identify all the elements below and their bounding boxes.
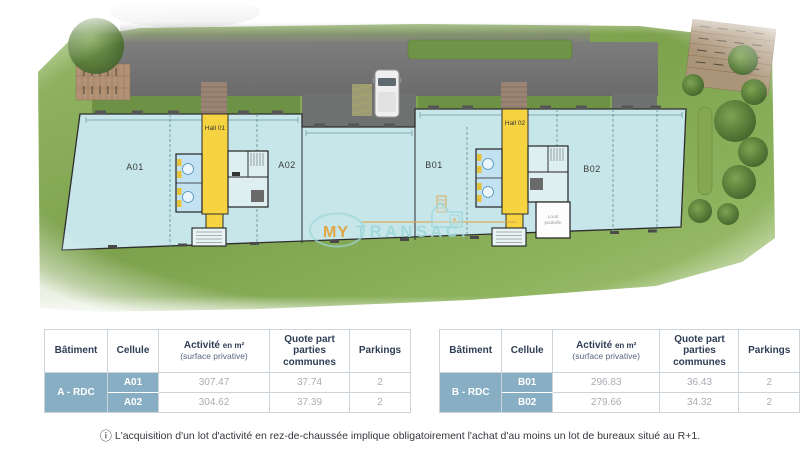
header-activite: Activité en m² (surface privative): [159, 330, 270, 373]
activite-value: 304.62: [159, 393, 270, 413]
header-activite-sub: (surface privative): [557, 352, 656, 362]
quote-value: 37.39: [270, 393, 350, 413]
cellule-cell: A01: [108, 373, 159, 393]
header-quote-part: Quote part parties communes: [270, 330, 350, 373]
site-plan: Hall 01 Local: [0, 0, 800, 322]
header-cellule: Cellule: [108, 330, 159, 373]
parkings-value: 2: [739, 373, 800, 393]
activite-value: 279.66: [552, 393, 660, 413]
footnote: ⓘL'acquisition d'un lot d'activité en re…: [0, 427, 800, 444]
page: Hall 01 Local: [0, 0, 800, 450]
cellule-cell: A02: [108, 393, 159, 413]
header-parkings: Parkings: [350, 330, 411, 373]
quote-value: 34.32: [660, 393, 739, 413]
activite-value: 296.83: [552, 373, 660, 393]
edge-fade: [0, 0, 800, 322]
header-batiment: Bâtiment: [440, 330, 502, 373]
quote-value: 36.43: [660, 373, 739, 393]
cellule-cell: B02: [502, 393, 553, 413]
table-row: B - RDC B01 296.83 36.43 2: [440, 373, 800, 393]
batiment-a-cell: A - RDC: [45, 373, 108, 413]
parkings-value: 2: [350, 373, 411, 393]
header-quote-part: Quote part parties communes: [660, 330, 739, 373]
header-activite-main: Activité: [576, 340, 612, 351]
header-activite-unit: en m²: [223, 341, 244, 350]
header-parkings: Parkings: [739, 330, 800, 373]
table-batiment-b: Bâtiment Cellule Activité en m² (surface…: [439, 329, 800, 413]
header-batiment: Bâtiment: [45, 330, 108, 373]
header-activite-unit: en m²: [615, 341, 636, 350]
header-activite-sub: (surface privative): [163, 352, 265, 362]
info-icon: ⓘ: [100, 429, 112, 443]
table-batiment-a: Bâtiment Cellule Activité en m² (surface…: [44, 329, 411, 413]
header-activite-main: Activité: [184, 340, 220, 351]
header-cellule: Cellule: [502, 330, 553, 373]
parkings-value: 2: [350, 393, 411, 413]
header-activite: Activité en m² (surface privative): [552, 330, 660, 373]
quote-value: 37.74: [270, 373, 350, 393]
footnote-text: L'acquisition d'un lot d'activité en rez…: [115, 430, 700, 442]
table-row: A - RDC A01 307.47 37.74 2: [45, 373, 411, 393]
cellule-cell: B01: [502, 373, 553, 393]
activite-value: 307.47: [159, 373, 270, 393]
parkings-value: 2: [739, 393, 800, 413]
batiment-b-cell: B - RDC: [440, 373, 502, 413]
